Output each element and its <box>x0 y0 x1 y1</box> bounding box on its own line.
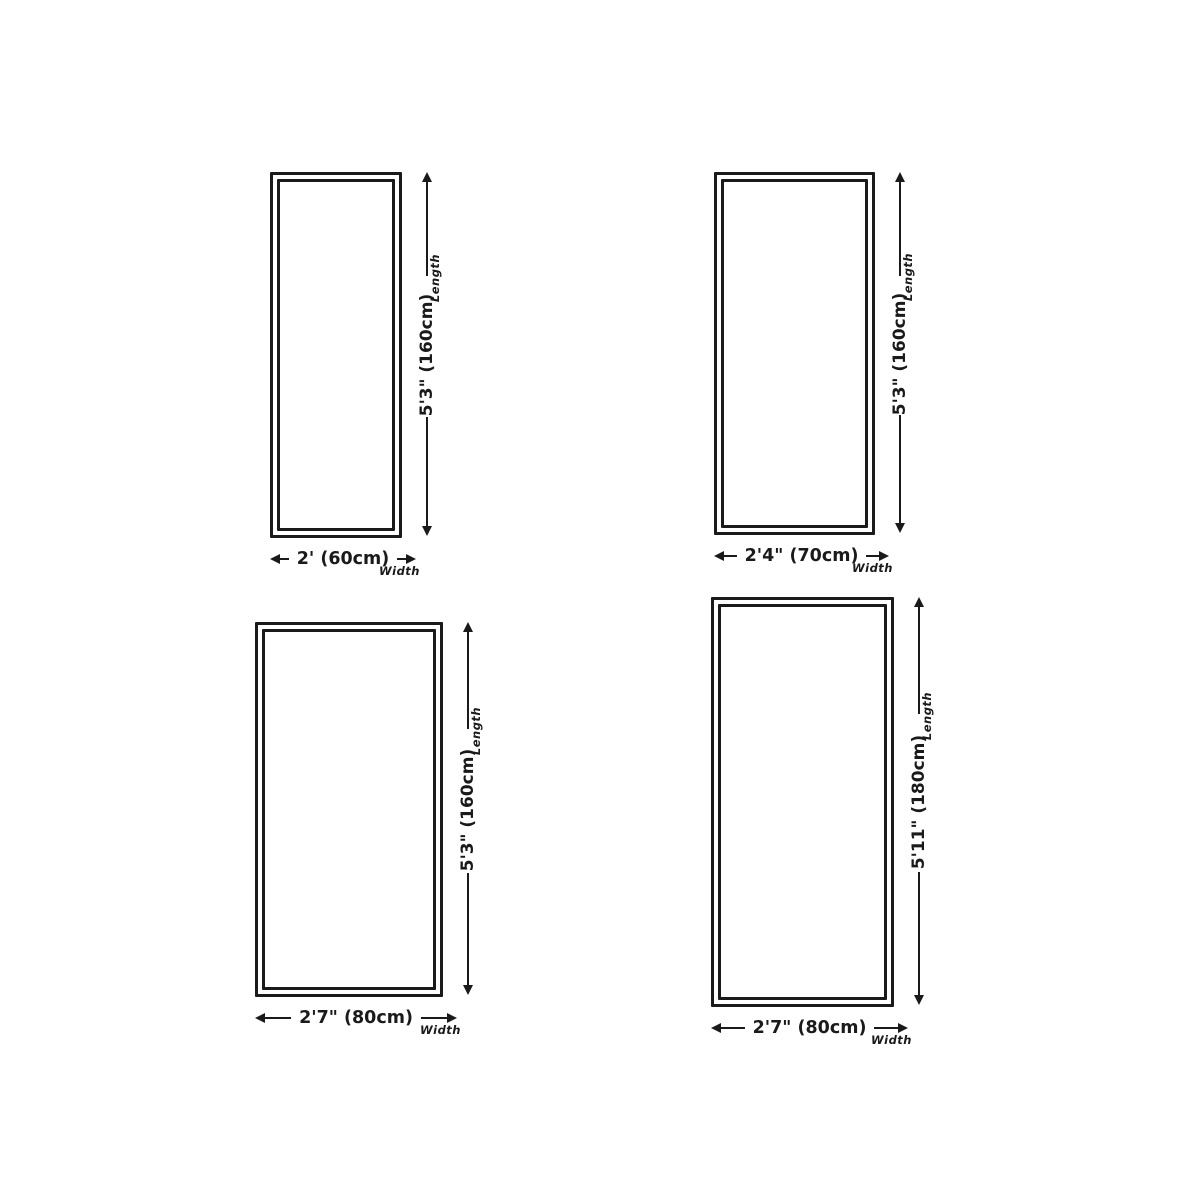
width-value: 2'7" (80cm) <box>291 1008 421 1028</box>
length-dimension-arrow: Length 5'3" (160cm) <box>459 622 495 997</box>
size-diagram-bottom-right: Length 5'11" (180cm) 2'7" (80cm) Width <box>711 597 894 1007</box>
length-dimension-arrow: Length 5'3" (160cm) <box>891 172 927 535</box>
rug-inner-border <box>277 179 395 531</box>
arrow-left-icon <box>714 551 724 561</box>
length-arrow-line-bottom <box>899 415 901 531</box>
length-arrow-line-bottom <box>426 417 428 534</box>
length-dimension-arrow: Length 5'3" (160cm) <box>418 172 454 538</box>
arrow-up-icon <box>895 172 905 182</box>
rug-inner-border <box>262 629 436 990</box>
arrow-right-icon <box>879 551 889 561</box>
width-arrow-line-left <box>280 558 289 560</box>
length-axis-label: Length <box>920 692 934 740</box>
arrow-up-icon <box>463 622 473 632</box>
arrow-down-icon <box>895 523 905 533</box>
width-arrow-line-right <box>874 1027 898 1029</box>
width-arrow-line-left <box>724 555 737 557</box>
width-axis-label: Width <box>871 1033 912 1047</box>
arrow-down-icon <box>914 995 924 1005</box>
width-arrow-line-right <box>397 558 406 560</box>
width-arrow-line-left <box>721 1027 745 1029</box>
rug-outline <box>255 622 443 997</box>
width-axis-label: Width <box>852 561 893 575</box>
width-arrow-line-left <box>265 1017 291 1019</box>
size-guide-canvas: Length 5'3" (160cm) 2' (60cm) Width Leng… <box>0 0 1200 1200</box>
length-axis-label: Length <box>469 707 483 755</box>
size-diagram-top-left: Length 5'3" (160cm) 2' (60cm) Width <box>270 172 402 538</box>
length-arrow-line-bottom <box>467 873 469 993</box>
width-axis-label: Width <box>379 564 420 578</box>
length-value: 5'3" (160cm) <box>417 294 437 416</box>
arrow-right-icon <box>447 1013 457 1023</box>
arrow-down-icon <box>422 526 432 536</box>
rug-outline <box>270 172 402 538</box>
width-value: 2'7" (80cm) <box>745 1018 875 1038</box>
length-dimension-arrow: Length 5'11" (180cm) <box>910 597 946 1007</box>
arrow-left-icon <box>255 1013 265 1023</box>
arrow-right-icon <box>406 554 416 564</box>
length-value: 5'11" (180cm) <box>909 735 929 869</box>
width-value: 2'4" (70cm) <box>737 546 867 566</box>
size-diagram-bottom-left: Length 5'3" (160cm) 2'7" (80cm) Width <box>255 622 443 997</box>
arrow-left-icon <box>270 554 280 564</box>
width-arrow-line-right <box>421 1017 447 1019</box>
width-axis-label: Width <box>420 1023 461 1037</box>
arrow-up-icon <box>914 597 924 607</box>
arrow-right-icon <box>898 1023 908 1033</box>
width-arrow-line-right <box>866 555 879 557</box>
size-diagram-top-right: Length 5'3" (160cm) 2'4" (70cm) Width <box>714 172 875 535</box>
rug-inner-border <box>718 604 887 1000</box>
arrow-up-icon <box>422 172 432 182</box>
length-value: 5'3" (160cm) <box>890 292 910 414</box>
rug-inner-border <box>721 179 868 528</box>
arrow-left-icon <box>711 1023 721 1033</box>
arrow-down-icon <box>463 985 473 995</box>
rug-outline <box>714 172 875 535</box>
rug-outline <box>711 597 894 1007</box>
length-arrow-line-bottom <box>918 872 920 1003</box>
length-value: 5'3" (160cm) <box>458 748 478 870</box>
